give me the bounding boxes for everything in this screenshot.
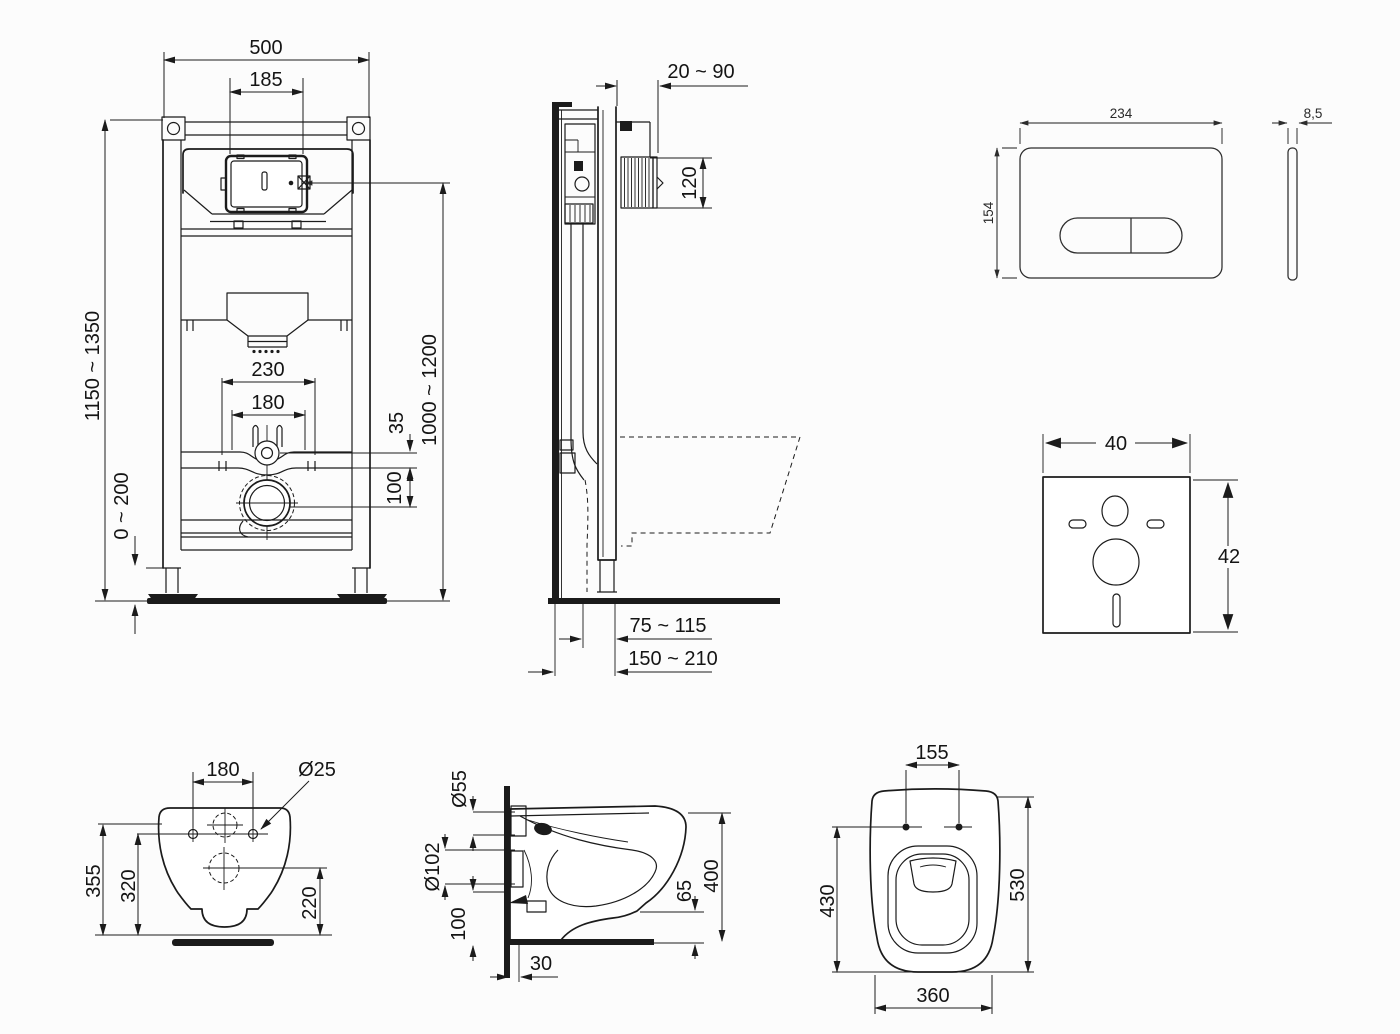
floor-bar-side xyxy=(548,598,780,604)
dim-wall-distance: 20 ~ 90 xyxy=(596,61,748,153)
dim-label-seat-bolt-span: 155 xyxy=(915,742,948,764)
fill-valve-port xyxy=(575,177,589,191)
dim-label-overall-width: 360 xyxy=(916,985,949,1007)
dim-label-drain-offset: 75 ~ 115 xyxy=(630,615,707,637)
dim-bolt-to-front: 430 xyxy=(817,827,839,972)
dim-overall-height: 355 xyxy=(83,825,105,935)
dim-drain-center-height: 220 xyxy=(299,868,321,935)
technical-drawing-sheet: 500 185 1150 ~ 1350 230 180 35 xyxy=(0,0,1400,1034)
flush-button xyxy=(1060,218,1182,253)
floor-bar xyxy=(147,598,387,604)
dim-drain-outlet-diameter: Ø102 xyxy=(422,834,515,900)
dim-label-duct-height: 120 xyxy=(679,166,701,199)
bowl-rear-outline xyxy=(159,808,291,927)
dim-label-bolt-height: 320 xyxy=(118,869,140,902)
dim-label-pad-width: 40 xyxy=(1105,433,1127,455)
dim-drain-offset-max: 150 ~ 210 xyxy=(528,648,718,672)
dim-label-plate-width: 234 xyxy=(1110,106,1133,121)
bowl-side-view: Ø55 Ø102 100 30 65 400 xyxy=(422,770,731,982)
frame-hanger-hole-left xyxy=(168,123,180,135)
flush-plate-side-profile xyxy=(1288,148,1297,280)
dim-pad-width: 40 xyxy=(1043,433,1190,473)
flush-plate-front-view: 234 154 8,5 xyxy=(981,106,1332,280)
dim-pad-height: 42 xyxy=(1193,480,1240,632)
dim-plate-width: 234 xyxy=(1020,106,1222,144)
dim-overall-width: 360 xyxy=(875,975,992,1014)
dim-label-overall-height: 355 xyxy=(83,864,105,897)
drawing-canvas: 500 185 1150 ~ 1350 230 180 35 xyxy=(0,0,1400,1034)
dim-bolt-height: 320 xyxy=(118,834,140,935)
dim-label-supply-span: 230 xyxy=(251,359,284,381)
cistern-side-profile xyxy=(565,124,595,224)
dim-label-plate-height: 154 xyxy=(981,201,996,224)
bowl-top-view: 155 430 530 360 xyxy=(817,742,1034,1014)
dim-label-drain-outlet: Ø102 xyxy=(422,843,444,892)
dim-label-drain-center-height: 220 xyxy=(299,886,321,919)
frame-corner-plate-left xyxy=(162,117,185,140)
bowl-outline-ghost xyxy=(620,437,800,546)
frame-hanger-hole-right xyxy=(353,123,365,135)
dim-overall-length: 530 xyxy=(1007,797,1029,972)
cistern-access-panel xyxy=(221,155,310,212)
wall-section-bowl xyxy=(504,786,510,978)
flush-bend xyxy=(181,293,352,353)
actuator-duct xyxy=(621,157,663,208)
dim-foot-adjust: 0 ~ 200 xyxy=(111,472,164,634)
dim-drain-drop: 100 xyxy=(384,468,410,507)
supply-pipe-socket xyxy=(255,441,279,465)
dim-label-drain-offset-max: 150 ~ 210 xyxy=(628,648,718,670)
dim-plate-thickness: 8,5 xyxy=(1272,106,1332,144)
frame-side-view: 20 ~ 90 120 75 ~ 115 150 ~ 210 xyxy=(528,61,800,676)
bowl-rear-view: 180 Ø25 355 320 220 xyxy=(83,759,336,946)
dim-label-flush-inlet: Ø55 xyxy=(449,770,471,808)
dim-label-bolt-to-front: 430 xyxy=(817,884,839,917)
dim-label-drain-drop: 100 xyxy=(384,471,406,504)
dim-projection: 400 xyxy=(688,813,731,941)
dim-label-supply-drop: 35 xyxy=(386,412,408,434)
wall-bracket-clamp xyxy=(620,121,632,131)
dim-label-foot-adjust: 0 ~ 200 xyxy=(111,472,133,539)
base-bar-bowl xyxy=(504,939,654,945)
frame-leg-side xyxy=(597,560,617,592)
dim-wall-clearance: 30 xyxy=(490,945,558,982)
dim-label-panel-cutout: 185 xyxy=(249,69,282,91)
floor-bar-rear xyxy=(172,939,274,946)
frame-corner-plate-right xyxy=(347,117,370,140)
dim-underside-height: 100 xyxy=(448,876,508,961)
sound-insulation-pad: 40 42 xyxy=(1043,433,1240,633)
flush-pipe xyxy=(560,224,597,592)
dim-label-overall-length: 530 xyxy=(1007,868,1029,901)
dim-plate-height: 154 xyxy=(981,148,1017,278)
dim-label-rear-bolt-span: 180 xyxy=(206,759,239,781)
dim-label-wall-distance: 20 ~ 90 xyxy=(667,61,734,83)
dim-label-bolt-span: 180 xyxy=(251,392,284,414)
dim-duct-height: 120 xyxy=(650,158,712,208)
dim-label-plate-thickness: 8,5 xyxy=(1304,106,1323,121)
dim-label-underside-height: 100 xyxy=(448,907,470,940)
dim-label-pad-height: 42 xyxy=(1218,546,1240,568)
dim-panel-cutout-width: 185 xyxy=(230,69,303,154)
frame-rail-profile xyxy=(598,107,616,560)
flush-plate-body xyxy=(1020,148,1222,278)
wall-section xyxy=(552,106,559,604)
dim-label-frame-height: 1150 ~ 1350 xyxy=(82,311,104,421)
dim-label-wall-clearance: 30 xyxy=(530,953,552,975)
pad-body xyxy=(1043,477,1190,633)
dim-label-actuator-height: 1000 ~ 1200 xyxy=(419,334,441,446)
frame-front-view: 500 185 1150 ~ 1350 230 180 35 xyxy=(82,37,450,634)
dim-label-rim-drop: 65 xyxy=(674,880,696,902)
panel-screw xyxy=(289,181,294,186)
dim-label-projection: 400 xyxy=(701,859,723,892)
dim-label-bolt-hole-diameter: Ø25 xyxy=(298,759,336,781)
dim-label-frame-width: 500 xyxy=(249,37,282,59)
